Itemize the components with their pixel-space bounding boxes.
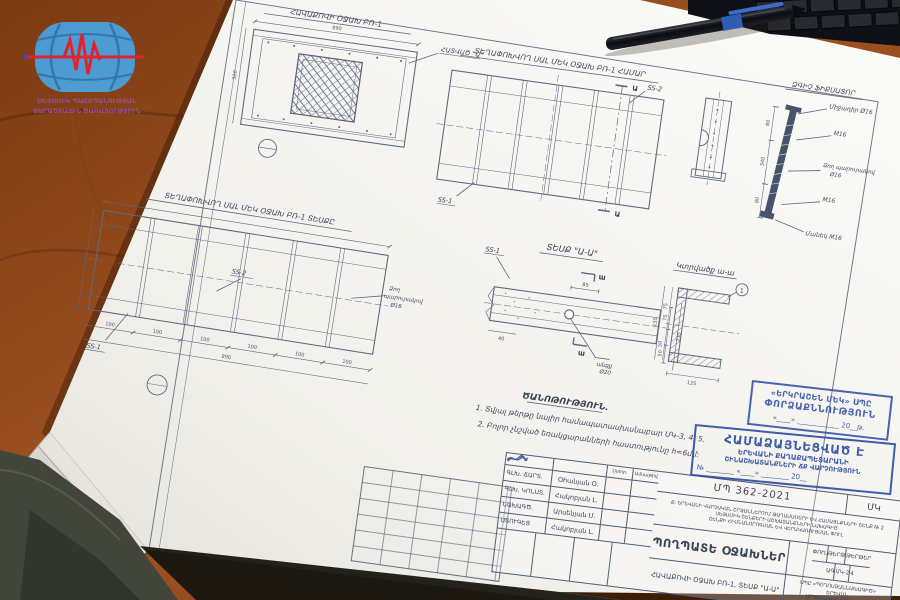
dim-label: 80	[754, 197, 761, 204]
logo-text-line1: ՍԵՅՍՄԻԿ ՊԱՇՏՊԱՆՈՒԹՅԱՆ	[37, 97, 137, 105]
dim-label: 80	[765, 119, 772, 126]
photo-of-technical-drawing: ՀԱՎԱՔՈՎԻ ՕՋԱԽ ԲՌ-1 890 300 ՀԱՏՎԱԾ "Ա" ՏԵ…	[0, 0, 900, 600]
dim-label: 85	[582, 282, 589, 289]
title-block-signatures: Ստոր. Ամսաթիվ ԳԼԽ. ՃԱՐՏ. Օհանյան Օ. ԳԼԽ.…	[492, 453, 659, 590]
dim-label: 40	[498, 336, 505, 343]
revision-table	[351, 466, 513, 582]
institution-logo: ՍԵՅՍՄԻԿ ՊԱՇՏՊԱՆՈՒԹՅԱՆ ՏԱՐԱԾՔԱՅԻՆ ԾԱՌԱՅՈՒ…	[24, 22, 145, 115]
marker-a: ա	[598, 272, 606, 282]
dim-label: 50	[657, 340, 664, 347]
logo-text-line2: ՏԱՐԱԾՔԱՅԻՆ ԾԱՌԱՅՈՒԹՅՈՒՆ	[33, 107, 141, 115]
dim-label: 75	[663, 303, 670, 310]
table-value-sheets: 4	[849, 565, 854, 582]
marker-a: ա	[577, 348, 585, 358]
